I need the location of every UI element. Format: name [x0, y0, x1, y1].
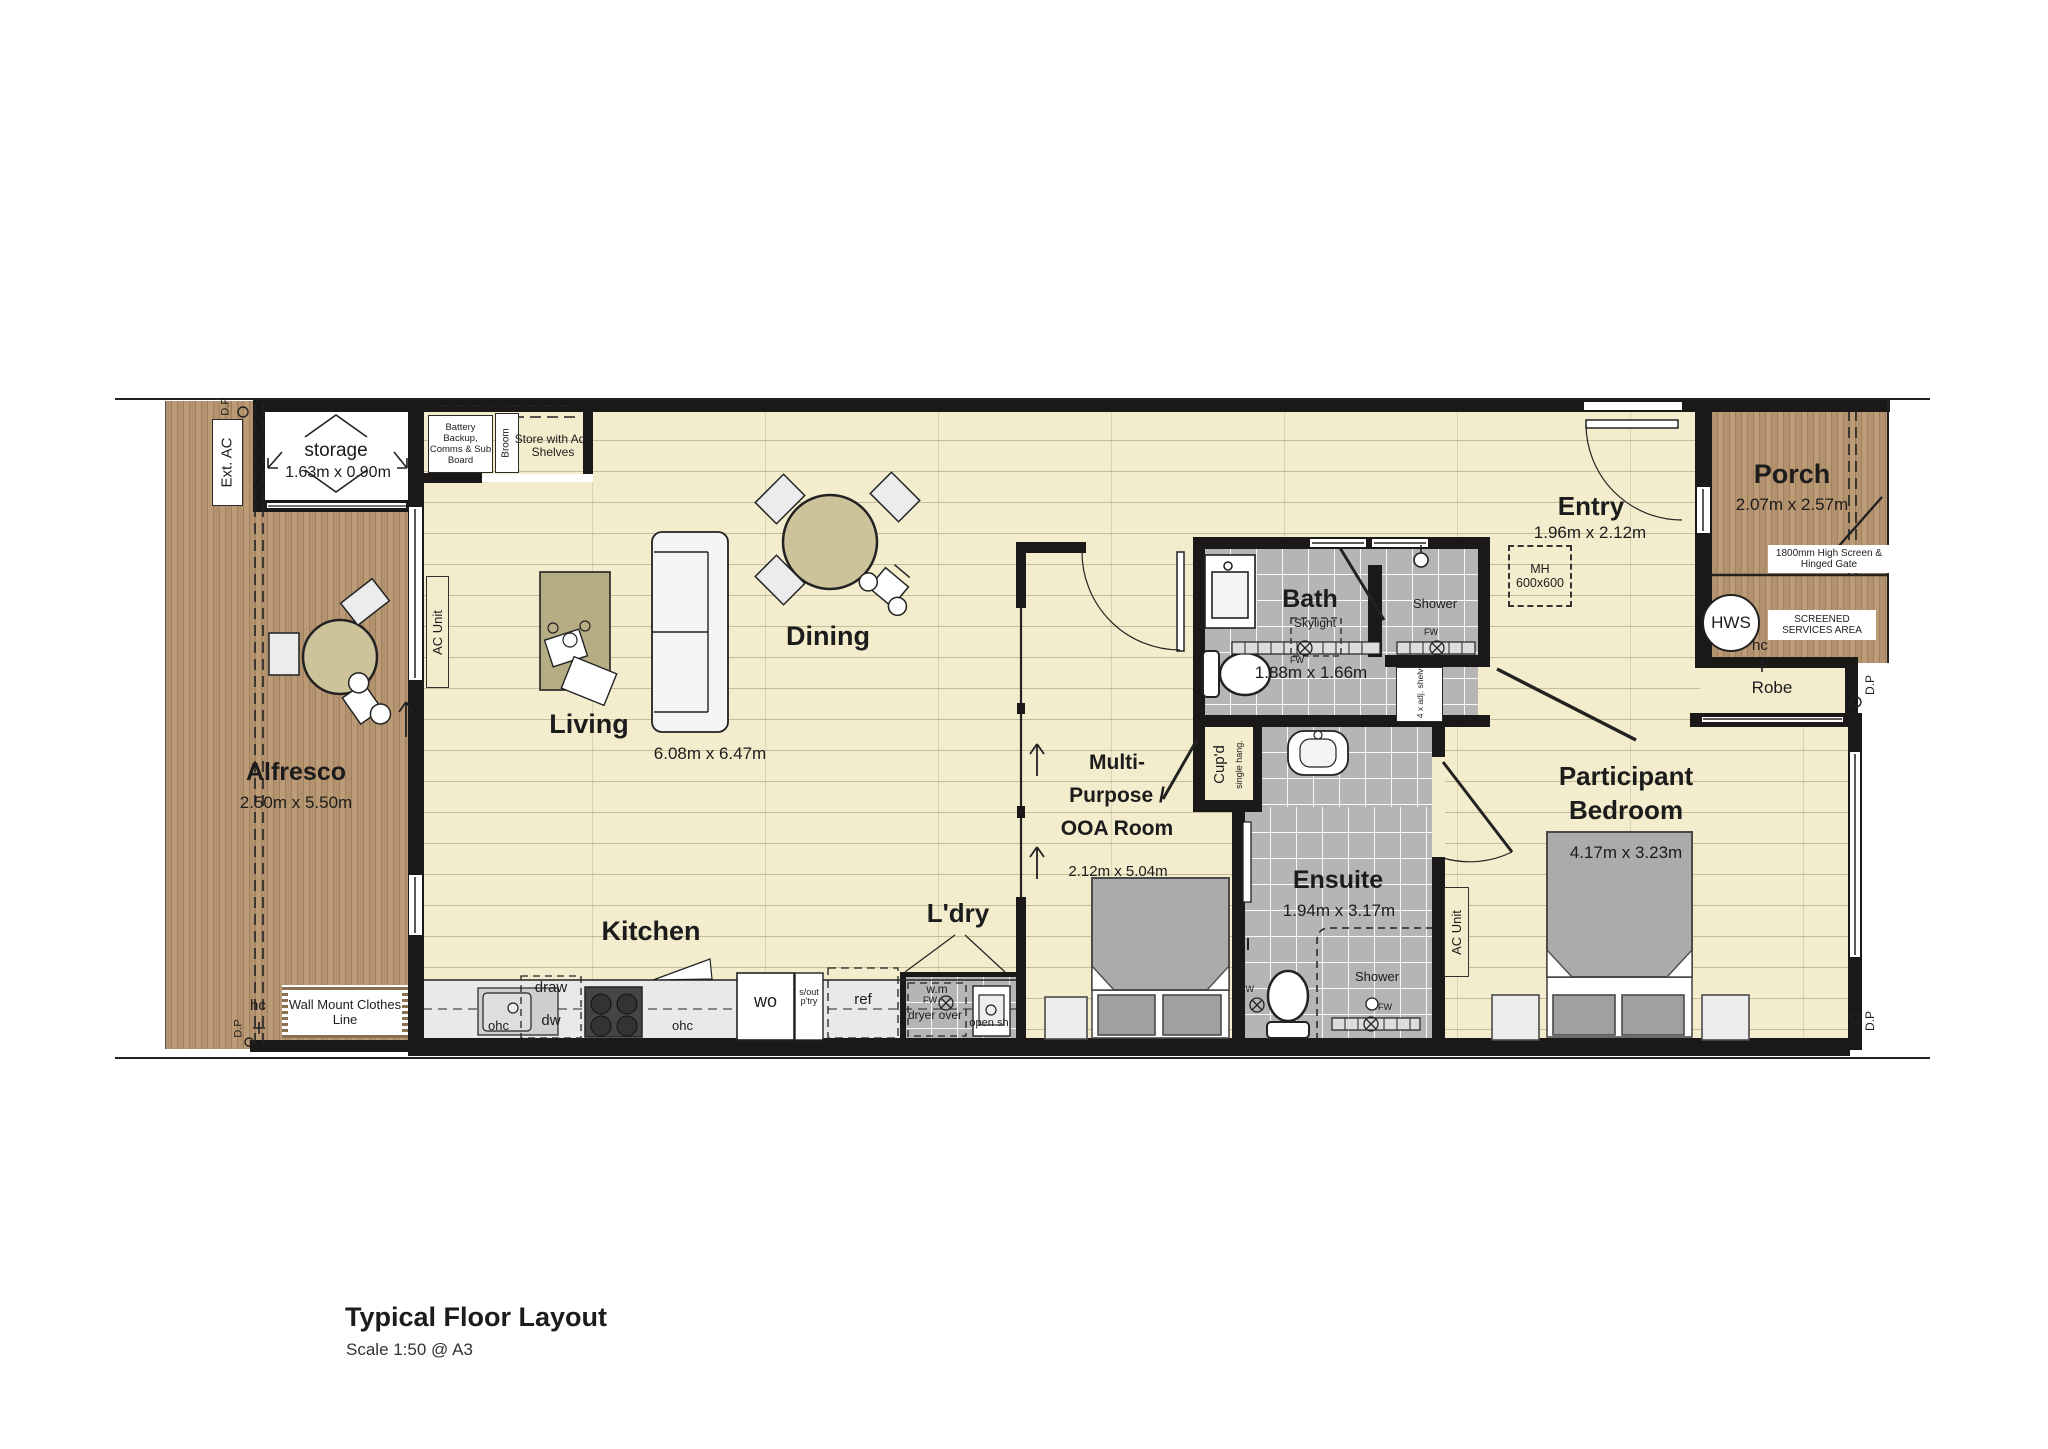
room-label-mp1: Multi-	[1057, 752, 1177, 774]
sout-ptry-label: s/out p'try	[794, 988, 824, 1007]
ac-unit-bedroom-box: AC Unit	[1444, 887, 1469, 977]
skylight-label: Skylight	[1272, 617, 1358, 630]
wm-label: w.m	[908, 983, 966, 996]
hall-door	[1082, 552, 1184, 651]
fw-ensuite-toilet: FW	[1240, 985, 1254, 994]
room-label-mp3: OOA Room	[1042, 818, 1192, 840]
battery-box: Battery Backup, Comms & Sub Board	[428, 415, 493, 473]
hc-porch: hc	[1752, 638, 1768, 654]
dining-furniture	[755, 472, 923, 619]
room-label-ensuite: Ensuite	[1278, 867, 1398, 893]
room-dims-entry: 1.96m x 2.12m	[1512, 524, 1668, 542]
adj-shelves-label: 4 x adj. shelves	[1415, 671, 1424, 719]
clothes-line-box: Wall Mount Clothes Line	[282, 985, 408, 1038]
room-label-laundry: L'dry	[918, 900, 998, 927]
dp-robe: D.P	[1860, 666, 1880, 704]
plan-linework	[0, 0, 2048, 1449]
hc-deck: hc	[250, 998, 266, 1014]
dp-bottom-right: D.P	[1860, 1002, 1880, 1040]
room-label-living: Living	[539, 710, 639, 738]
store-shelves-label: Store with Adj. Shelves	[513, 433, 593, 458]
room-label-alfresco: Alfresco	[226, 759, 366, 785]
room-dims-living: 6.08m x 6.47m	[632, 745, 788, 763]
shower-bath-label: Shower	[1404, 597, 1466, 611]
adj-shelves-box: 4 x adj. shelves	[1396, 667, 1443, 722]
fw-laundry: FW	[923, 996, 937, 1005]
cupd-label: Cup'd	[1212, 745, 1227, 784]
high-screen-label: 1800mm High Screen & Hinged Gate	[1768, 548, 1890, 570]
dp-bottom-left: D.P	[230, 1010, 248, 1046]
room-label-storage: storage	[286, 441, 386, 461]
room-dims-ensuite: 1.94m x 3.17m	[1261, 902, 1417, 920]
draw-label: draw	[521, 980, 581, 996]
ac-unit-living-label: AC Unit	[431, 610, 444, 655]
bedroom-hall-door	[1497, 669, 1636, 740]
dryer-over-label: dryer over	[902, 1009, 968, 1022]
room-label-entry: Entry	[1541, 493, 1641, 520]
room-dims-alfresco: 2.50m x 5.50m	[220, 794, 372, 812]
multipurpose-furniture	[1045, 878, 1229, 1039]
floor-plan-page: HWS Alfresco 2.50m x 5.50m storage 1.63m…	[0, 0, 2048, 1449]
single-hang-label: single hang.	[1235, 740, 1244, 789]
dw-label: dw	[521, 1013, 581, 1029]
hws-label: HWS	[1711, 614, 1751, 632]
broom-label: Broom	[502, 428, 512, 457]
room-label-kitchen: Kitchen	[591, 917, 711, 945]
ohc-sink: ohc	[488, 1019, 509, 1033]
room-label-dining: Dining	[778, 622, 878, 650]
ref-label: ref	[828, 992, 898, 1008]
room-dims-bath: 1.88m x 1.66m	[1233, 664, 1389, 682]
alfresco-furniture	[269, 579, 394, 735]
ext-ac-box: Ext. AC	[212, 419, 243, 506]
ensuite-door	[1443, 762, 1512, 862]
room-label-bedroom1: Participant	[1546, 763, 1706, 790]
room-dims-mp: 2.12m x 5.04m	[1042, 864, 1194, 880]
room-dims-bedroom: 4.17m x 3.23m	[1548, 844, 1704, 862]
ac-unit-living-box: AC Unit	[426, 576, 449, 688]
high-screen-box: 1800mm High Screen & Hinged Gate	[1768, 545, 1890, 573]
ohc-right: ohc	[672, 1019, 693, 1033]
battery-label: Battery Backup, Comms & Sub Board	[429, 422, 492, 466]
room-dims-porch: 2.07m x 2.57m	[1714, 496, 1870, 514]
room-label-mp2: Purpose /	[1047, 785, 1187, 807]
page-scale: Scale 1:50 @ A3	[346, 1341, 473, 1359]
fw-bath: FW	[1290, 656, 1304, 665]
room-label-porch: Porch	[1742, 460, 1842, 488]
clothes-line-label: Wall Mount Clothes Line	[288, 997, 402, 1027]
ac-unit-bedroom-label: AC Unit	[1450, 910, 1463, 955]
room-label-bedroom2: Bedroom	[1546, 797, 1706, 824]
tap-symbols	[253, 660, 1768, 1034]
page-title: Typical Floor Layout	[345, 1303, 607, 1331]
fw-ensuite-shower: FW	[1378, 1003, 1392, 1012]
shower-ensuite-label: Shower	[1346, 970, 1408, 984]
screened-services-box: SCREENED SERVICES AREA	[1768, 610, 1876, 640]
bedroom-furniture	[1492, 832, 1749, 1040]
mh-label: MH 600x600	[1515, 562, 1565, 590]
room-label-bath: Bath	[1260, 586, 1360, 612]
dp-top-left: D.P	[216, 388, 236, 424]
room-dims-storage: 1.63m x 0.90m	[263, 465, 413, 482]
ext-ac-label: Ext. AC	[220, 437, 235, 487]
wo-label: wo	[737, 992, 794, 1011]
open-sh-label: open sh	[963, 1018, 1015, 1030]
screened-services-label: SCREENED SERVICES AREA	[1768, 614, 1876, 636]
cupd-hang-box: single hang.	[1230, 727, 1248, 801]
room-label-robe: Robe	[1722, 679, 1822, 697]
fw-bath-shower: FW	[1424, 628, 1438, 637]
mh-box: MH 600x600	[1508, 545, 1572, 607]
living-furniture	[540, 532, 728, 732]
